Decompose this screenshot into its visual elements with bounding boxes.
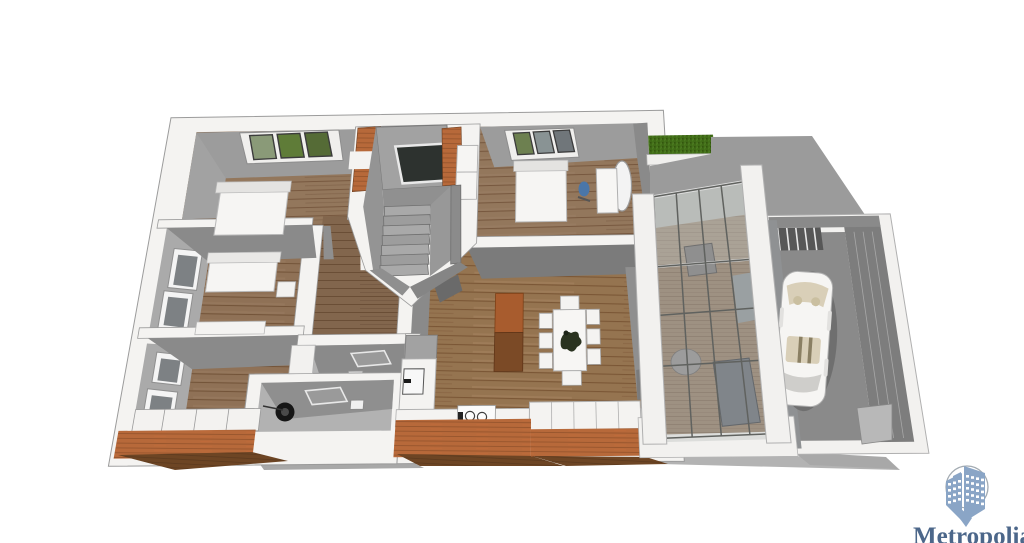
svg-text:Metropolia: Metropolia (913, 523, 1024, 543)
